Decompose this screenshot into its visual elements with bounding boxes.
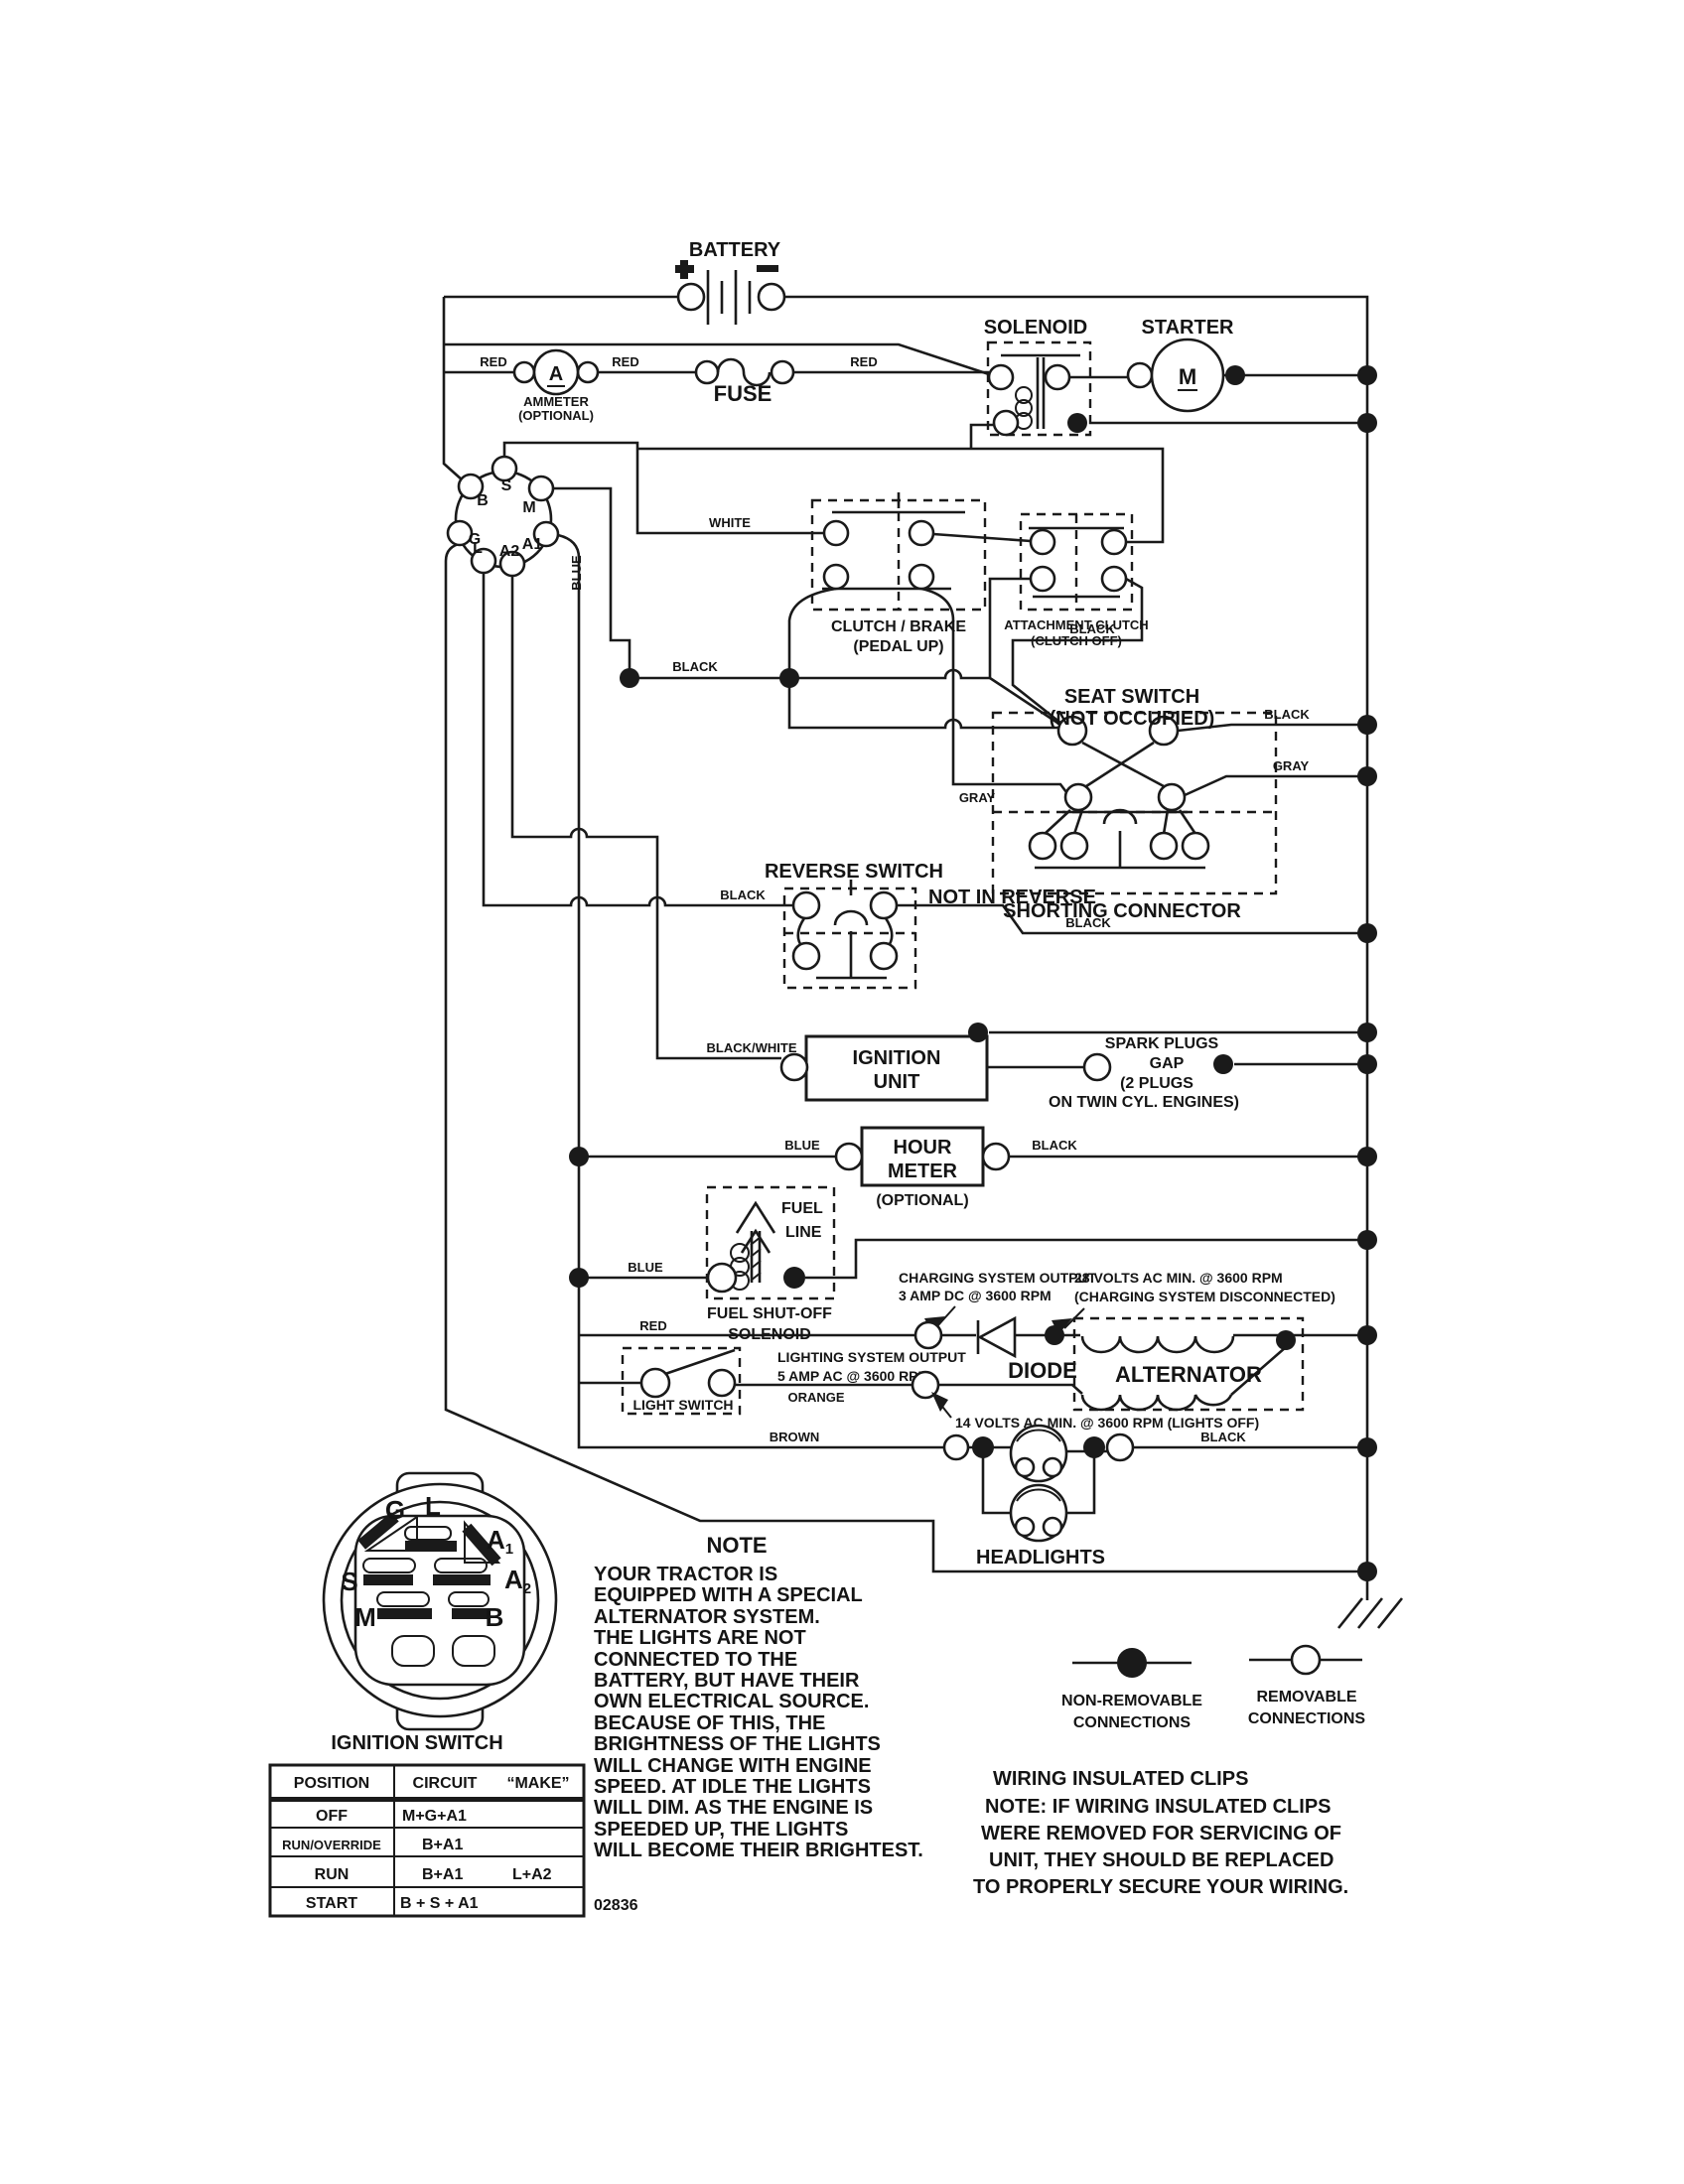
note-line: BATTERY, BUT HAVE THEIR bbox=[594, 1670, 860, 1692]
table-row-circuit: B+A1 bbox=[422, 1837, 463, 1853]
note-line: BECAUSE OF THIS, THE bbox=[594, 1712, 825, 1734]
fuel-solenoid-label-1: FUEL SHUT-OFF bbox=[707, 1305, 832, 1322]
diode-label: DIODE bbox=[1008, 1358, 1077, 1383]
note-line: EQUIPPED WITH A SPECIAL bbox=[594, 1584, 863, 1606]
face-terminal-s: S bbox=[341, 1567, 357, 1596]
wire-label-black: BLACK bbox=[1264, 707, 1310, 722]
hour-meter-label-1: HOUR bbox=[894, 1137, 952, 1159]
removable-connection-icon bbox=[1292, 1646, 1320, 1674]
volts28-label-2: (CHARGING SYSTEM DISCONNECTED) bbox=[1074, 1289, 1335, 1304]
wire-label-blue-vertical: BLUE bbox=[569, 555, 584, 591]
hour-meter-label-2: METER bbox=[888, 1160, 958, 1182]
seat-switch-label: SEAT SWITCH bbox=[1064, 686, 1199, 708]
note-line: THE LIGHTS ARE NOT bbox=[594, 1627, 806, 1649]
wire-label-black: BLACK bbox=[672, 659, 718, 674]
wire-label-red: RED bbox=[850, 354, 877, 369]
not-in-reverse-label: NOT IN REVERSE bbox=[928, 887, 1096, 908]
legend-nonremovable-label: NON-REMOVABLE bbox=[1061, 1693, 1202, 1709]
terminal-m-label: M bbox=[522, 499, 535, 516]
wire-label-black: BLACK bbox=[1200, 1430, 1246, 1444]
note-line: SPEEDED UP, THE LIGHTS bbox=[594, 1819, 848, 1841]
clutch-brake-state-label: (PEDAL UP) bbox=[853, 638, 943, 655]
wire-label-black: BLACK bbox=[1065, 915, 1111, 930]
legend-connections-label: CONNECTIONS bbox=[1248, 1710, 1366, 1727]
wire-label-red: RED bbox=[612, 354, 638, 369]
wire-label-blue: BLUE bbox=[784, 1138, 820, 1153]
spark-plugs-label-4: ON TWIN CYL. ENGINES) bbox=[1049, 1094, 1239, 1111]
wire-label-white: WHITE bbox=[709, 515, 751, 530]
terminal-a1-label: A1 bbox=[522, 536, 543, 553]
note-line: SPEED. AT IDLE THE LIGHTS bbox=[594, 1776, 871, 1798]
face-terminal-g: G bbox=[385, 1495, 405, 1525]
wire-label-gray: GRAY bbox=[1273, 758, 1310, 773]
spark-plugs-label-3: (2 PLUGS bbox=[1120, 1075, 1193, 1092]
note-line: WILL DIM. AS THE ENGINE IS bbox=[594, 1797, 873, 1819]
table-row-position: RUN/OVERRIDE bbox=[282, 1838, 381, 1852]
face-terminal-b: B bbox=[486, 1602, 504, 1632]
table-header-circuit: CIRCUIT bbox=[413, 1775, 478, 1792]
terminal-l-label: L bbox=[473, 540, 483, 557]
note-line: WILL CHANGE WITH ENGINE bbox=[594, 1755, 872, 1777]
wire-label-black: BLACK bbox=[720, 887, 766, 902]
clips-line: TO PROPERLY SECURE YOUR WIRING. bbox=[973, 1876, 1348, 1898]
table-header-make: “MAKE” bbox=[506, 1775, 569, 1792]
spark-plugs-label-2: GAP bbox=[1150, 1055, 1185, 1072]
wire-label-orange: ORANGE bbox=[787, 1390, 844, 1405]
lighting-output-label-1: LIGHTING SYSTEM OUTPUT bbox=[777, 1349, 966, 1365]
volts28-label-1: 28 VOLTS AC MIN. @ 3600 RPM bbox=[1074, 1270, 1283, 1286]
ignition-unit-label-2: UNIT bbox=[874, 1071, 920, 1093]
doc-number: 02836 bbox=[594, 1897, 638, 1914]
clips-line: NOTE: IF WIRING INSULATED CLIPS bbox=[985, 1796, 1332, 1818]
face-terminal-l: L bbox=[425, 1491, 441, 1521]
reverse-switch-label: REVERSE SWITCH bbox=[765, 861, 943, 883]
wire-label-brown: BROWN bbox=[770, 1430, 820, 1444]
battery-terminal-positive bbox=[678, 284, 704, 310]
light-switch-label: LIGHT SWITCH bbox=[632, 1397, 733, 1413]
spark-plugs-label-1: SPARK PLUGS bbox=[1105, 1035, 1219, 1052]
clips-title: WIRING INSULATED CLIPS bbox=[993, 1768, 1248, 1790]
terminal-s-label: S bbox=[501, 478, 512, 494]
clips-line: WERE REMOVED FOR SERVICING OF bbox=[981, 1823, 1341, 1844]
wiring-diagram-canvas: BATTERY A AMMETER (OPTIONAL) FUSE RED RE… bbox=[0, 0, 1684, 2184]
battery-terminal-negative bbox=[759, 284, 784, 310]
note-line: CONNECTED TO THE bbox=[594, 1649, 797, 1671]
fuse-label: FUSE bbox=[714, 381, 772, 406]
hour-meter-optional-label: (OPTIONAL) bbox=[876, 1192, 968, 1209]
note-line: OWN ELECTRICAL SOURCE. bbox=[594, 1691, 869, 1712]
ammeter-label: AMMETER bbox=[523, 394, 589, 409]
note-line: WILL BECOME THEIR BRIGHTEST. bbox=[594, 1840, 923, 1861]
legend-connections-label: CONNECTIONS bbox=[1073, 1714, 1192, 1731]
table-row-circuit: B+A1 bbox=[422, 1866, 463, 1883]
note-title: NOTE bbox=[706, 1533, 767, 1558]
nonremovable-connection-icon bbox=[1117, 1648, 1147, 1678]
wire-label-blue: BLUE bbox=[628, 1260, 663, 1275]
ignition-switch-table: POSITION CIRCUIT “MAKE” OFF M+G+A1 RUN/O… bbox=[270, 1765, 638, 1916]
charging-output-label-1: CHARGING SYSTEM OUTPUT bbox=[899, 1270, 1097, 1286]
table-row-circuit: B + S + A1 bbox=[400, 1895, 479, 1912]
ammeter-letter: A bbox=[549, 363, 563, 385]
wire-label-black-white: BLACK/WHITE bbox=[707, 1040, 797, 1055]
charging-output-label-2: 3 AMP DC @ 3600 RPM bbox=[899, 1288, 1052, 1303]
table-row-position: RUN bbox=[315, 1866, 350, 1883]
clutch-brake-label: CLUTCH / BRAKE bbox=[831, 618, 966, 635]
wire-label-red: RED bbox=[639, 1318, 666, 1333]
terminal-b-label: B bbox=[477, 492, 489, 509]
wire-label-black: BLACK bbox=[1032, 1138, 1077, 1153]
headlights-label: HEADLIGHTS bbox=[976, 1547, 1105, 1569]
face-terminal-m: M bbox=[354, 1602, 376, 1632]
seat-switch-state-label: (NOT OCCUPIED) bbox=[1050, 708, 1215, 730]
battery-label: BATTERY bbox=[689, 239, 781, 261]
ignition-unit-label-1: IGNITION bbox=[853, 1047, 941, 1069]
wire-label-black: BLACK bbox=[1069, 621, 1115, 636]
fuel-solenoid-label-2: SOLENOID bbox=[728, 1326, 811, 1343]
table-row-position: START bbox=[306, 1895, 357, 1912]
ammeter-optional-label: (OPTIONAL) bbox=[518, 408, 594, 423]
note-line: ALTERNATOR SYSTEM. bbox=[594, 1606, 820, 1628]
note-line: BRIGHTNESS OF THE LIGHTS bbox=[594, 1733, 881, 1755]
legend-removable-label: REMOVABLE bbox=[1256, 1689, 1356, 1706]
starter-letter: M bbox=[1179, 364, 1196, 389]
fuel-label: FUEL bbox=[781, 1200, 823, 1217]
table-row-circuit: M+G+A1 bbox=[402, 1808, 467, 1825]
starter-label: STARTER bbox=[1142, 317, 1235, 339]
lighting-output-label-2: 5 AMP AC @ 3600 RPM bbox=[777, 1368, 929, 1384]
alternator-label: ALTERNATOR bbox=[1115, 1362, 1262, 1387]
table-header-position: POSITION bbox=[294, 1775, 369, 1792]
ignition-switch-caption: IGNITION SWITCH bbox=[331, 1732, 502, 1754]
volts14-label: 14 VOLTS AC MIN. @ 3600 RPM (LIGHTS OFF) bbox=[955, 1415, 1259, 1431]
table-row-position: OFF bbox=[316, 1808, 348, 1825]
wire-label-red: RED bbox=[480, 354, 506, 369]
note-line: YOUR TRACTOR IS bbox=[594, 1564, 777, 1585]
minus-icon bbox=[757, 265, 778, 272]
clips-line: UNIT, THEY SHOULD BE REPLACED bbox=[989, 1849, 1333, 1871]
wire-label-gray: GRAY bbox=[959, 790, 996, 805]
terminal-a2-label: A2 bbox=[499, 543, 520, 560]
fuel-line-label: LINE bbox=[785, 1224, 822, 1241]
table-row-make: L+A2 bbox=[512, 1866, 552, 1883]
solenoid-label: SOLENOID bbox=[984, 317, 1087, 339]
